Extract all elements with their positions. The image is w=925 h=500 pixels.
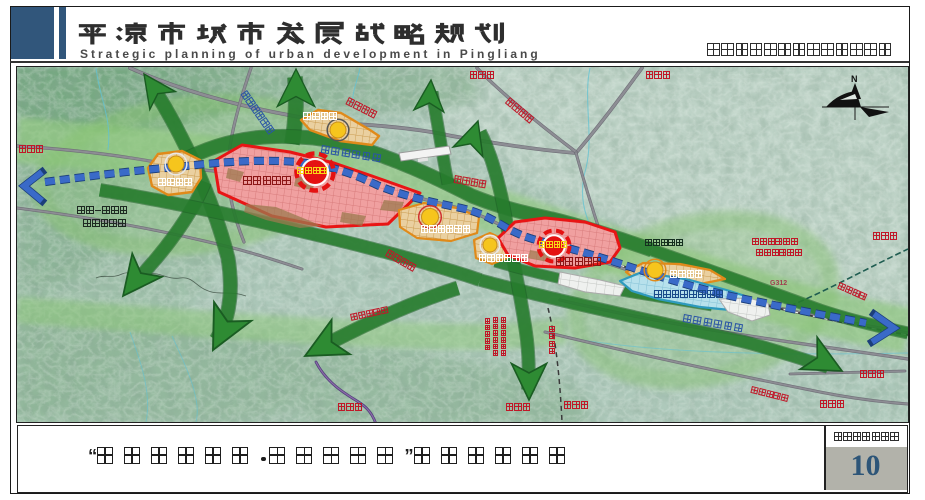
svg-text:N: N (851, 74, 858, 84)
